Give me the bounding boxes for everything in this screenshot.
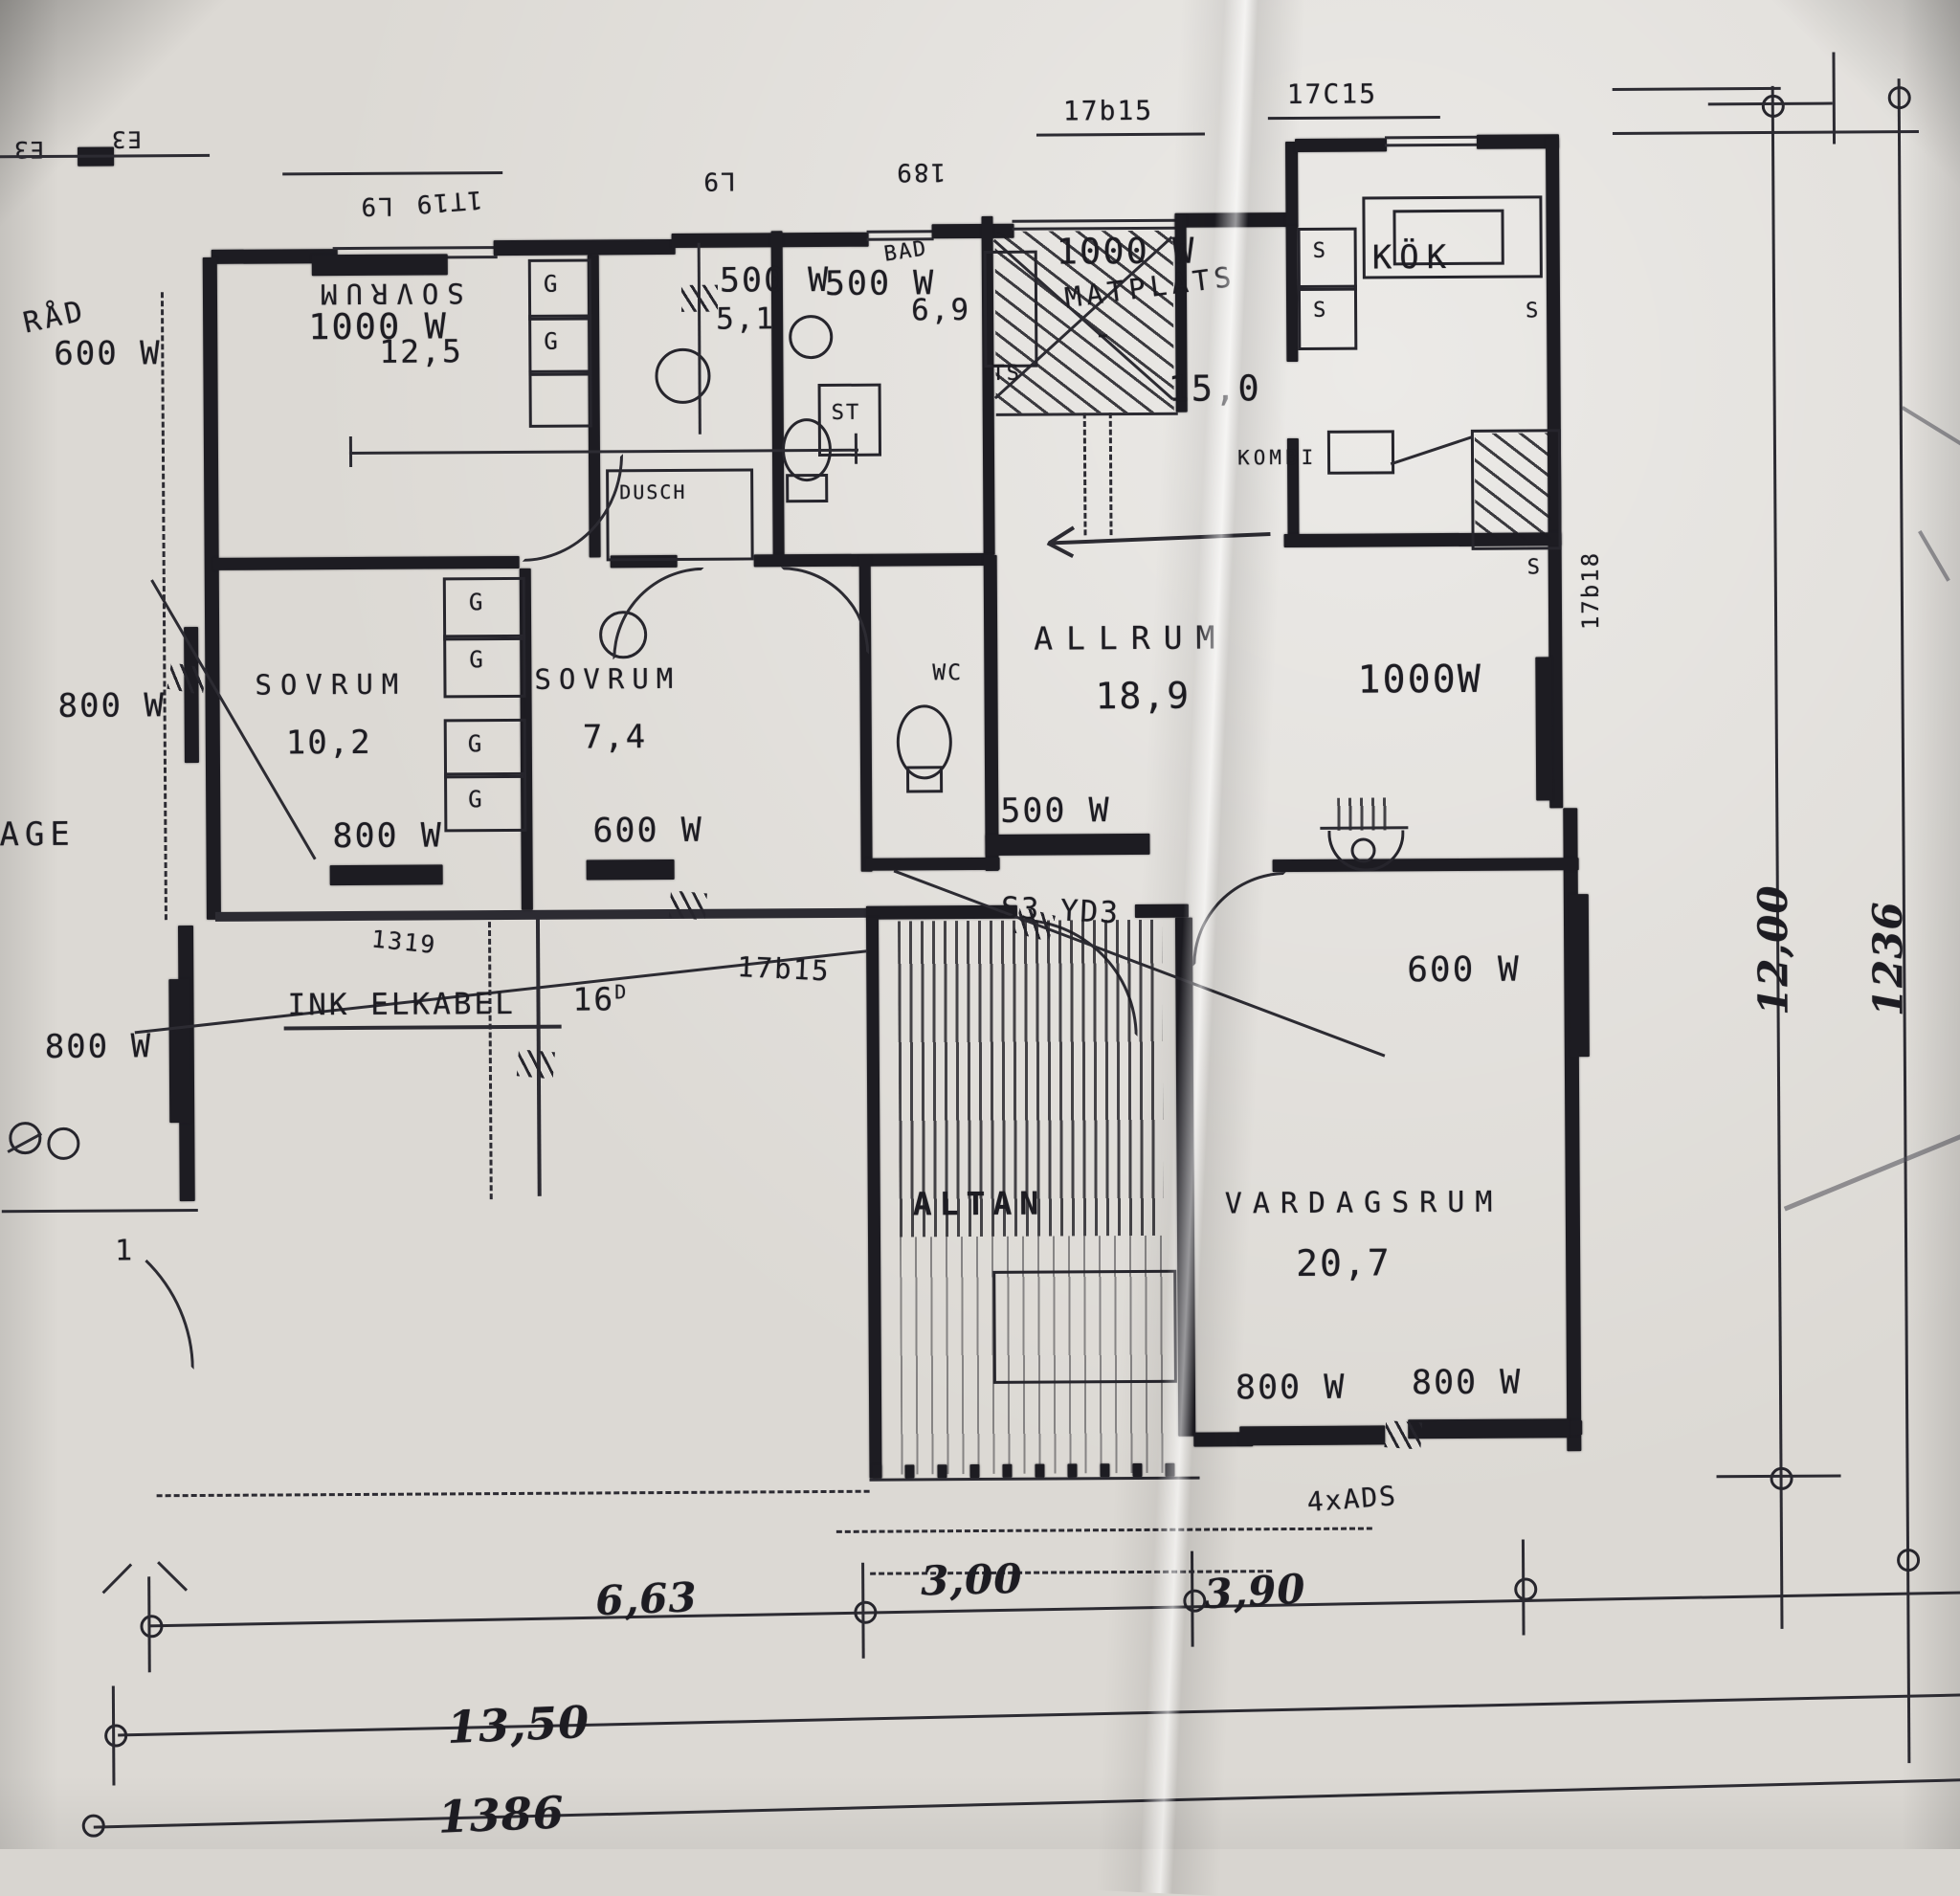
heater-watt-label: 800 W xyxy=(57,686,166,725)
window-line xyxy=(1013,219,1177,223)
wall-segment xyxy=(1295,138,1387,152)
terrace-post xyxy=(1067,1463,1077,1477)
counter-label: S xyxy=(1313,239,1327,263)
storage-room-label: RÅD xyxy=(20,294,89,340)
room-label: KÖK xyxy=(1372,238,1455,278)
wiring-code: 1T19 xyxy=(413,185,483,218)
wall-segment xyxy=(866,918,882,1479)
dimension-value: 13,50 xyxy=(446,1696,590,1753)
wardrobe-label: G xyxy=(469,646,485,673)
cable-hash-ticks xyxy=(167,662,207,695)
radiator-bar xyxy=(1239,1425,1385,1445)
dim-tick xyxy=(147,1576,151,1672)
stair-dashed xyxy=(1109,413,1113,535)
wall-segment xyxy=(1273,858,1579,872)
pencil-stroke xyxy=(1784,1134,1960,1212)
cable-hash-ticks xyxy=(1384,1420,1422,1449)
cable-line xyxy=(150,579,316,859)
terrace-post xyxy=(872,1465,881,1479)
room-area-label: 20,7 xyxy=(1296,1241,1392,1284)
dim-tick-line xyxy=(1717,1475,1841,1479)
cross-mark xyxy=(157,1561,188,1592)
garage-door-arc xyxy=(0,1214,41,1372)
dim-tick xyxy=(855,434,857,464)
garage-label: AGE xyxy=(0,815,76,854)
dim-tick xyxy=(1522,1540,1526,1636)
terrace-post xyxy=(1035,1464,1044,1478)
wiring-code: L9 xyxy=(702,167,735,195)
dashed-ground-line xyxy=(836,1528,1372,1533)
cross-mark xyxy=(102,1563,133,1594)
heater-watt-label: 800 W xyxy=(1236,1369,1347,1408)
dimension-line xyxy=(1771,86,1784,1629)
dimension-line xyxy=(94,1778,1960,1828)
dimension-node xyxy=(1762,95,1785,118)
washbasin-icon xyxy=(655,348,710,404)
floorplan-drawing: G G G G G G S S S S KOMBI TS DUSCH ST WC xyxy=(0,0,1960,1855)
wiring-code: 1319 xyxy=(370,925,438,959)
room-area-label: 10,2 xyxy=(286,724,372,763)
drying-cabinet-box xyxy=(984,251,1038,368)
wc-label: WC xyxy=(932,660,963,685)
pencil-stroke xyxy=(1902,406,1960,455)
wall-segment xyxy=(494,239,676,256)
garage-door-arc xyxy=(33,1213,194,1371)
counter-label: S xyxy=(1313,299,1327,323)
dim-tick-line xyxy=(1708,102,1833,106)
room-label: BAD xyxy=(882,236,929,266)
dimension-node xyxy=(104,1724,127,1747)
radiator-bar xyxy=(1570,894,1590,1057)
lamp-base-line xyxy=(1320,826,1408,830)
garage-door-line xyxy=(2,1209,198,1213)
wiring-code: 189 xyxy=(895,157,946,186)
underline xyxy=(284,1025,562,1031)
shower-label: DUSCH xyxy=(619,480,686,503)
wardrobe-label: G xyxy=(468,730,484,757)
wardrobe-box xyxy=(528,314,591,375)
toilet-tank xyxy=(786,474,828,502)
door-arc xyxy=(781,567,870,656)
heater-watt-label: 500 W xyxy=(720,261,831,301)
wardrobe-label: G xyxy=(469,589,485,615)
room-area-label: 5,1 xyxy=(716,301,775,336)
dim-tick xyxy=(349,436,352,467)
terrace-post xyxy=(904,1464,914,1478)
washbasin-icon xyxy=(789,315,833,359)
outlet-icon xyxy=(47,1127,79,1160)
wiring-code: 17b15 xyxy=(1063,95,1153,127)
lamp-hook xyxy=(1350,837,1375,862)
photographed-floorplan-paper: G G G G G G S S S S KOMBI TS DUSCH ST WC xyxy=(0,0,1960,1849)
dimension-node xyxy=(1888,86,1911,109)
wiring-code: 4xADS xyxy=(1306,1480,1399,1518)
wall-segment xyxy=(754,553,993,568)
radiator-bar xyxy=(985,834,1149,856)
dimension-value: 1236 xyxy=(1864,901,1912,1016)
heater-watt-label: 1000W xyxy=(1357,658,1482,703)
heater-watt-label: 800 W xyxy=(1412,1364,1523,1403)
dashed-ground-line xyxy=(157,1490,870,1498)
wardrobe-box xyxy=(444,719,526,779)
wall-segment xyxy=(859,556,873,872)
dim-tick xyxy=(112,1686,116,1786)
cable-hash-ticks xyxy=(517,1049,555,1079)
room-area-label: 7,4 xyxy=(583,718,648,756)
counter-label: S xyxy=(1526,299,1540,323)
electric-symbol-label: E3 xyxy=(12,136,44,163)
wardrobe-label: G xyxy=(544,271,560,298)
dimension-node xyxy=(140,1615,163,1638)
radiator-bar xyxy=(330,864,443,885)
dimension-node xyxy=(1770,1467,1793,1490)
room-area-label: 12,5 xyxy=(379,332,463,370)
dimension-line xyxy=(147,1592,1960,1628)
cable-hash-ticks xyxy=(681,285,718,312)
terrace-post xyxy=(937,1464,947,1478)
pencil-stroke xyxy=(1918,530,1950,582)
heater-watt-label: 800 W xyxy=(45,1027,153,1066)
dashed-boundary xyxy=(488,922,493,1199)
window-line xyxy=(333,246,498,250)
radiator-bar xyxy=(168,979,190,1123)
dimension-value: 6,63 xyxy=(594,1573,698,1624)
counter-label: S xyxy=(1527,555,1542,579)
wall-segment xyxy=(215,908,868,922)
door-code: S3 YD3 xyxy=(1000,891,1121,931)
dimension-node xyxy=(1897,1549,1920,1572)
dimension-line xyxy=(118,1693,1960,1736)
dimension-node xyxy=(1514,1577,1537,1600)
door-number: 1 xyxy=(115,1234,134,1267)
terrace-label: ALTAN xyxy=(913,1185,1047,1223)
code-16: 16 xyxy=(572,980,614,1017)
dim-tick xyxy=(861,1563,865,1659)
electric-symbol-label: E3 xyxy=(110,125,142,152)
dim-tick-line xyxy=(1613,130,1919,135)
dimension-node xyxy=(82,1815,105,1838)
kitchen-line xyxy=(1391,435,1473,465)
cable-note: INK ELKABEL xyxy=(287,987,516,1022)
wardrobe-box xyxy=(528,258,591,320)
riser-line xyxy=(698,243,702,435)
room-label: SOVRUM xyxy=(534,662,680,696)
dim-tick-line xyxy=(282,171,502,175)
heater-watt-label: 600 W xyxy=(54,334,162,373)
wardrobe-box xyxy=(444,772,526,833)
dim-tick-line xyxy=(1613,87,1781,91)
radiator-bar xyxy=(1408,1418,1569,1439)
radiator-bar xyxy=(312,254,448,276)
terrace-post xyxy=(1002,1464,1012,1478)
toilet-tank xyxy=(906,766,943,792)
cleaning-closet-label: ST xyxy=(832,401,861,425)
wiring-code: 16D xyxy=(572,980,628,1017)
code-16-sup: D xyxy=(614,980,628,1003)
kitchen-counter-box xyxy=(1327,430,1394,474)
wall-segment xyxy=(203,257,221,920)
wardrobe-label: G xyxy=(468,786,484,813)
heater-watt-label: 800 W xyxy=(332,816,443,856)
wardrobe-label: G xyxy=(544,328,560,355)
radiator-bar xyxy=(587,859,675,881)
dimension-value: 1386 xyxy=(437,1786,566,1842)
heater-watt-label: 600 W xyxy=(1407,950,1521,991)
wiring-code: 17b18 xyxy=(1577,551,1605,630)
dimension-value: 3,00 xyxy=(921,1555,1023,1604)
room-label: SOVRUM xyxy=(255,668,407,702)
wall-segment xyxy=(866,858,1000,871)
wiring-code: 17b15 xyxy=(737,950,832,987)
window-line xyxy=(867,230,934,233)
room-label: VARDAGSRUM xyxy=(1225,1186,1503,1221)
dimension-value: 12,00 xyxy=(1749,884,1797,1015)
wiring-code: L9 xyxy=(359,191,392,220)
stair-dashed xyxy=(1083,413,1087,535)
terrace-post xyxy=(1100,1463,1109,1477)
window-line xyxy=(1385,144,1479,147)
window-line xyxy=(1385,136,1479,140)
door-arc xyxy=(612,568,705,660)
dimension-node xyxy=(854,1601,877,1624)
heater-watt-label: 500 W xyxy=(1000,792,1111,831)
stair-line xyxy=(996,413,1178,416)
room-area-label: 6,9 xyxy=(911,293,970,327)
wall-segment xyxy=(984,555,999,871)
heater-watt-label: 600 W xyxy=(592,812,703,851)
dash-mark: - xyxy=(1093,315,1115,353)
terrace-post xyxy=(969,1464,979,1478)
radiator-bar xyxy=(1535,657,1552,800)
drying-cabinet-label: TS xyxy=(991,362,1021,386)
dim-tick xyxy=(1832,53,1836,145)
pantry-hatch xyxy=(1475,433,1552,540)
wall-segment xyxy=(213,556,520,570)
cable-hash-ticks xyxy=(669,890,707,920)
wardrobe-box xyxy=(528,369,591,427)
